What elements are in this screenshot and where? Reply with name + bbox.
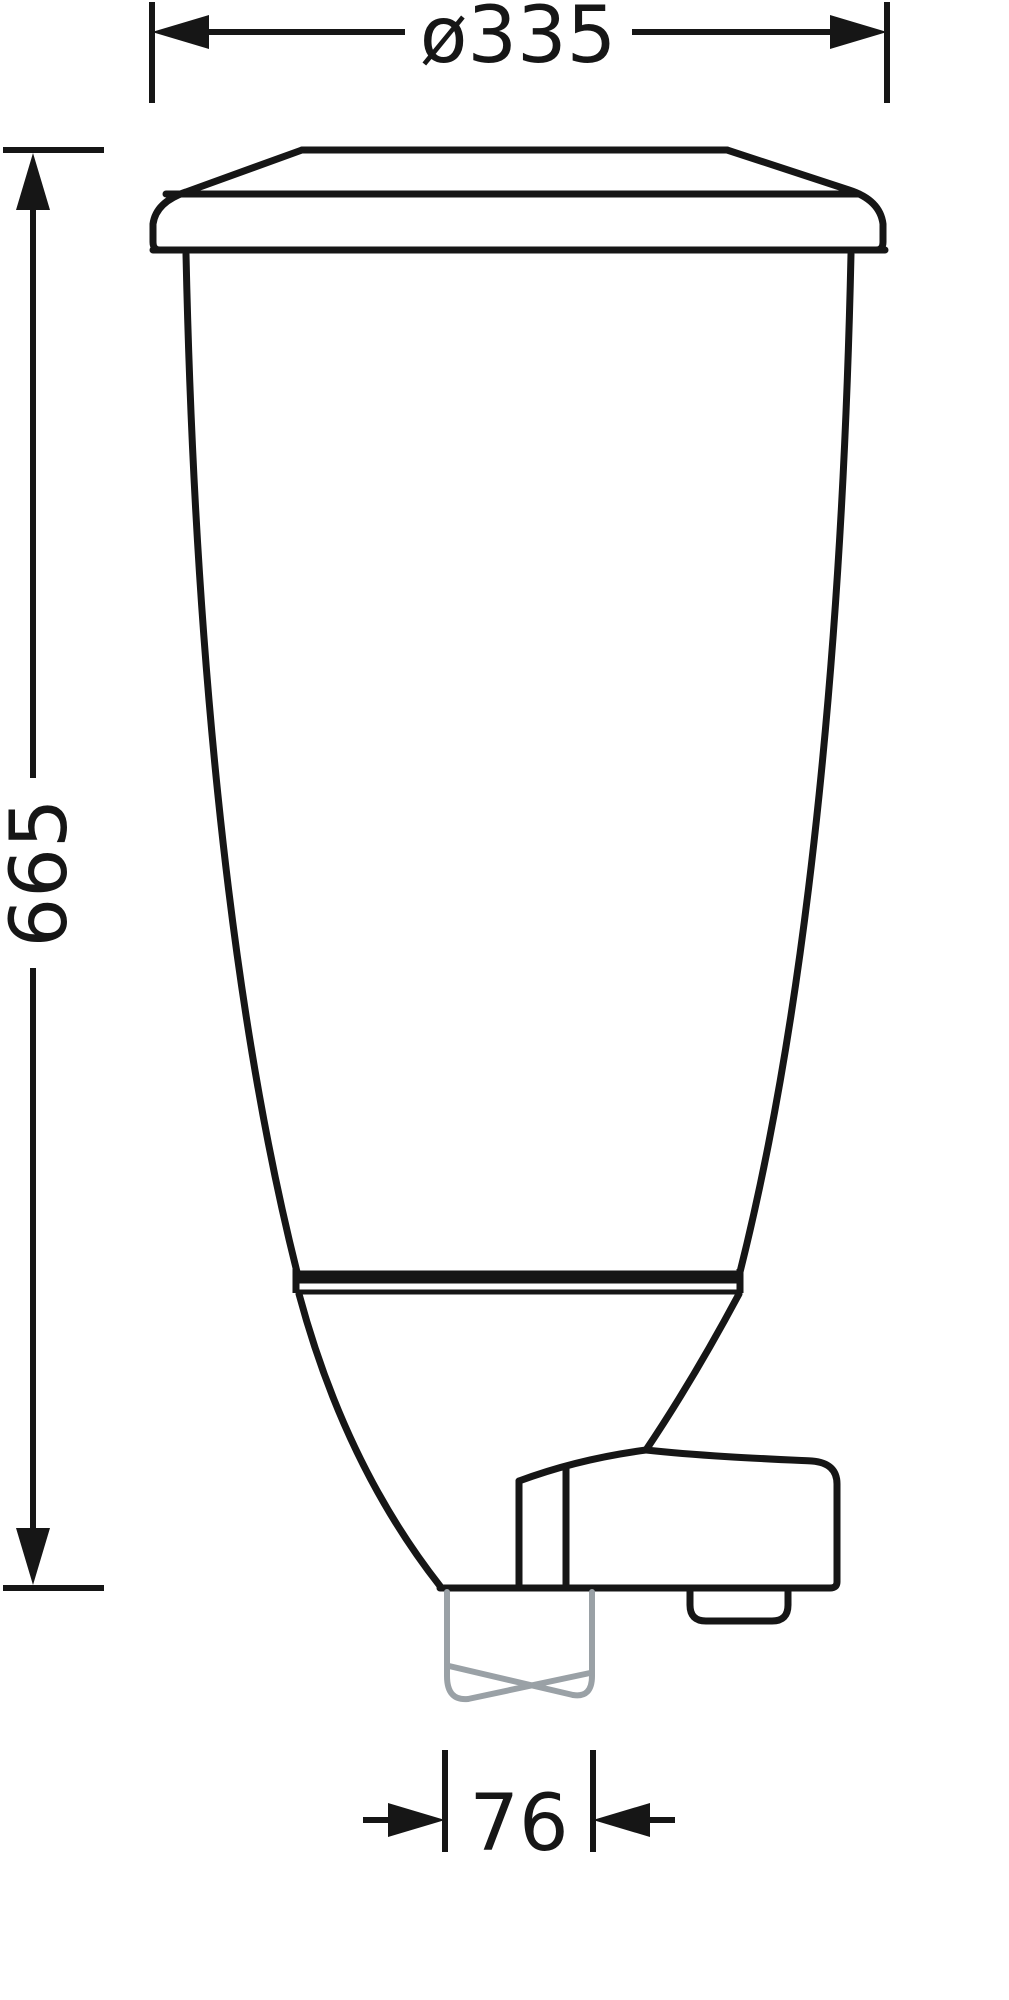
height-arrow-down (16, 1528, 50, 1585)
dispenser-top-slant (519, 1450, 646, 1481)
lid-right-bevel (727, 150, 883, 250)
funnel-left-edge (299, 1294, 440, 1586)
diameter-arrow-right (830, 15, 887, 49)
outlet-tube-right-edge (573, 1592, 592, 1695)
body-right-edge (740, 254, 851, 1272)
height-label: 665 (0, 799, 85, 948)
outlet-tube (447, 1592, 592, 1699)
dispenser-technical-drawing: ø335 665 76 (0, 0, 1009, 2000)
technical-drawing-page: ø335 665 76 (0, 0, 1009, 2000)
outlet-tube-left-edge (447, 1592, 468, 1699)
body-left-edge (186, 254, 297, 1272)
body-outline (186, 254, 851, 1272)
diameter-arrow-left (152, 15, 209, 49)
outlet-arrow-right-pointing (388, 1803, 445, 1837)
lid-left-bevel (153, 150, 302, 250)
height-arrow-up (16, 153, 50, 210)
funnel-right-edge (646, 1294, 739, 1450)
outlet-width-label: 76 (469, 1779, 568, 1869)
diameter-label: ø335 (420, 0, 617, 81)
lid-outline (153, 150, 885, 250)
dispenser-unit-outline (440, 1450, 837, 1621)
dispenser-bottom-tab (690, 1588, 788, 1621)
outlet-arrow-left-pointing (593, 1803, 650, 1837)
clamp-band (296, 1269, 741, 1293)
dispenser-body (440, 1450, 837, 1588)
